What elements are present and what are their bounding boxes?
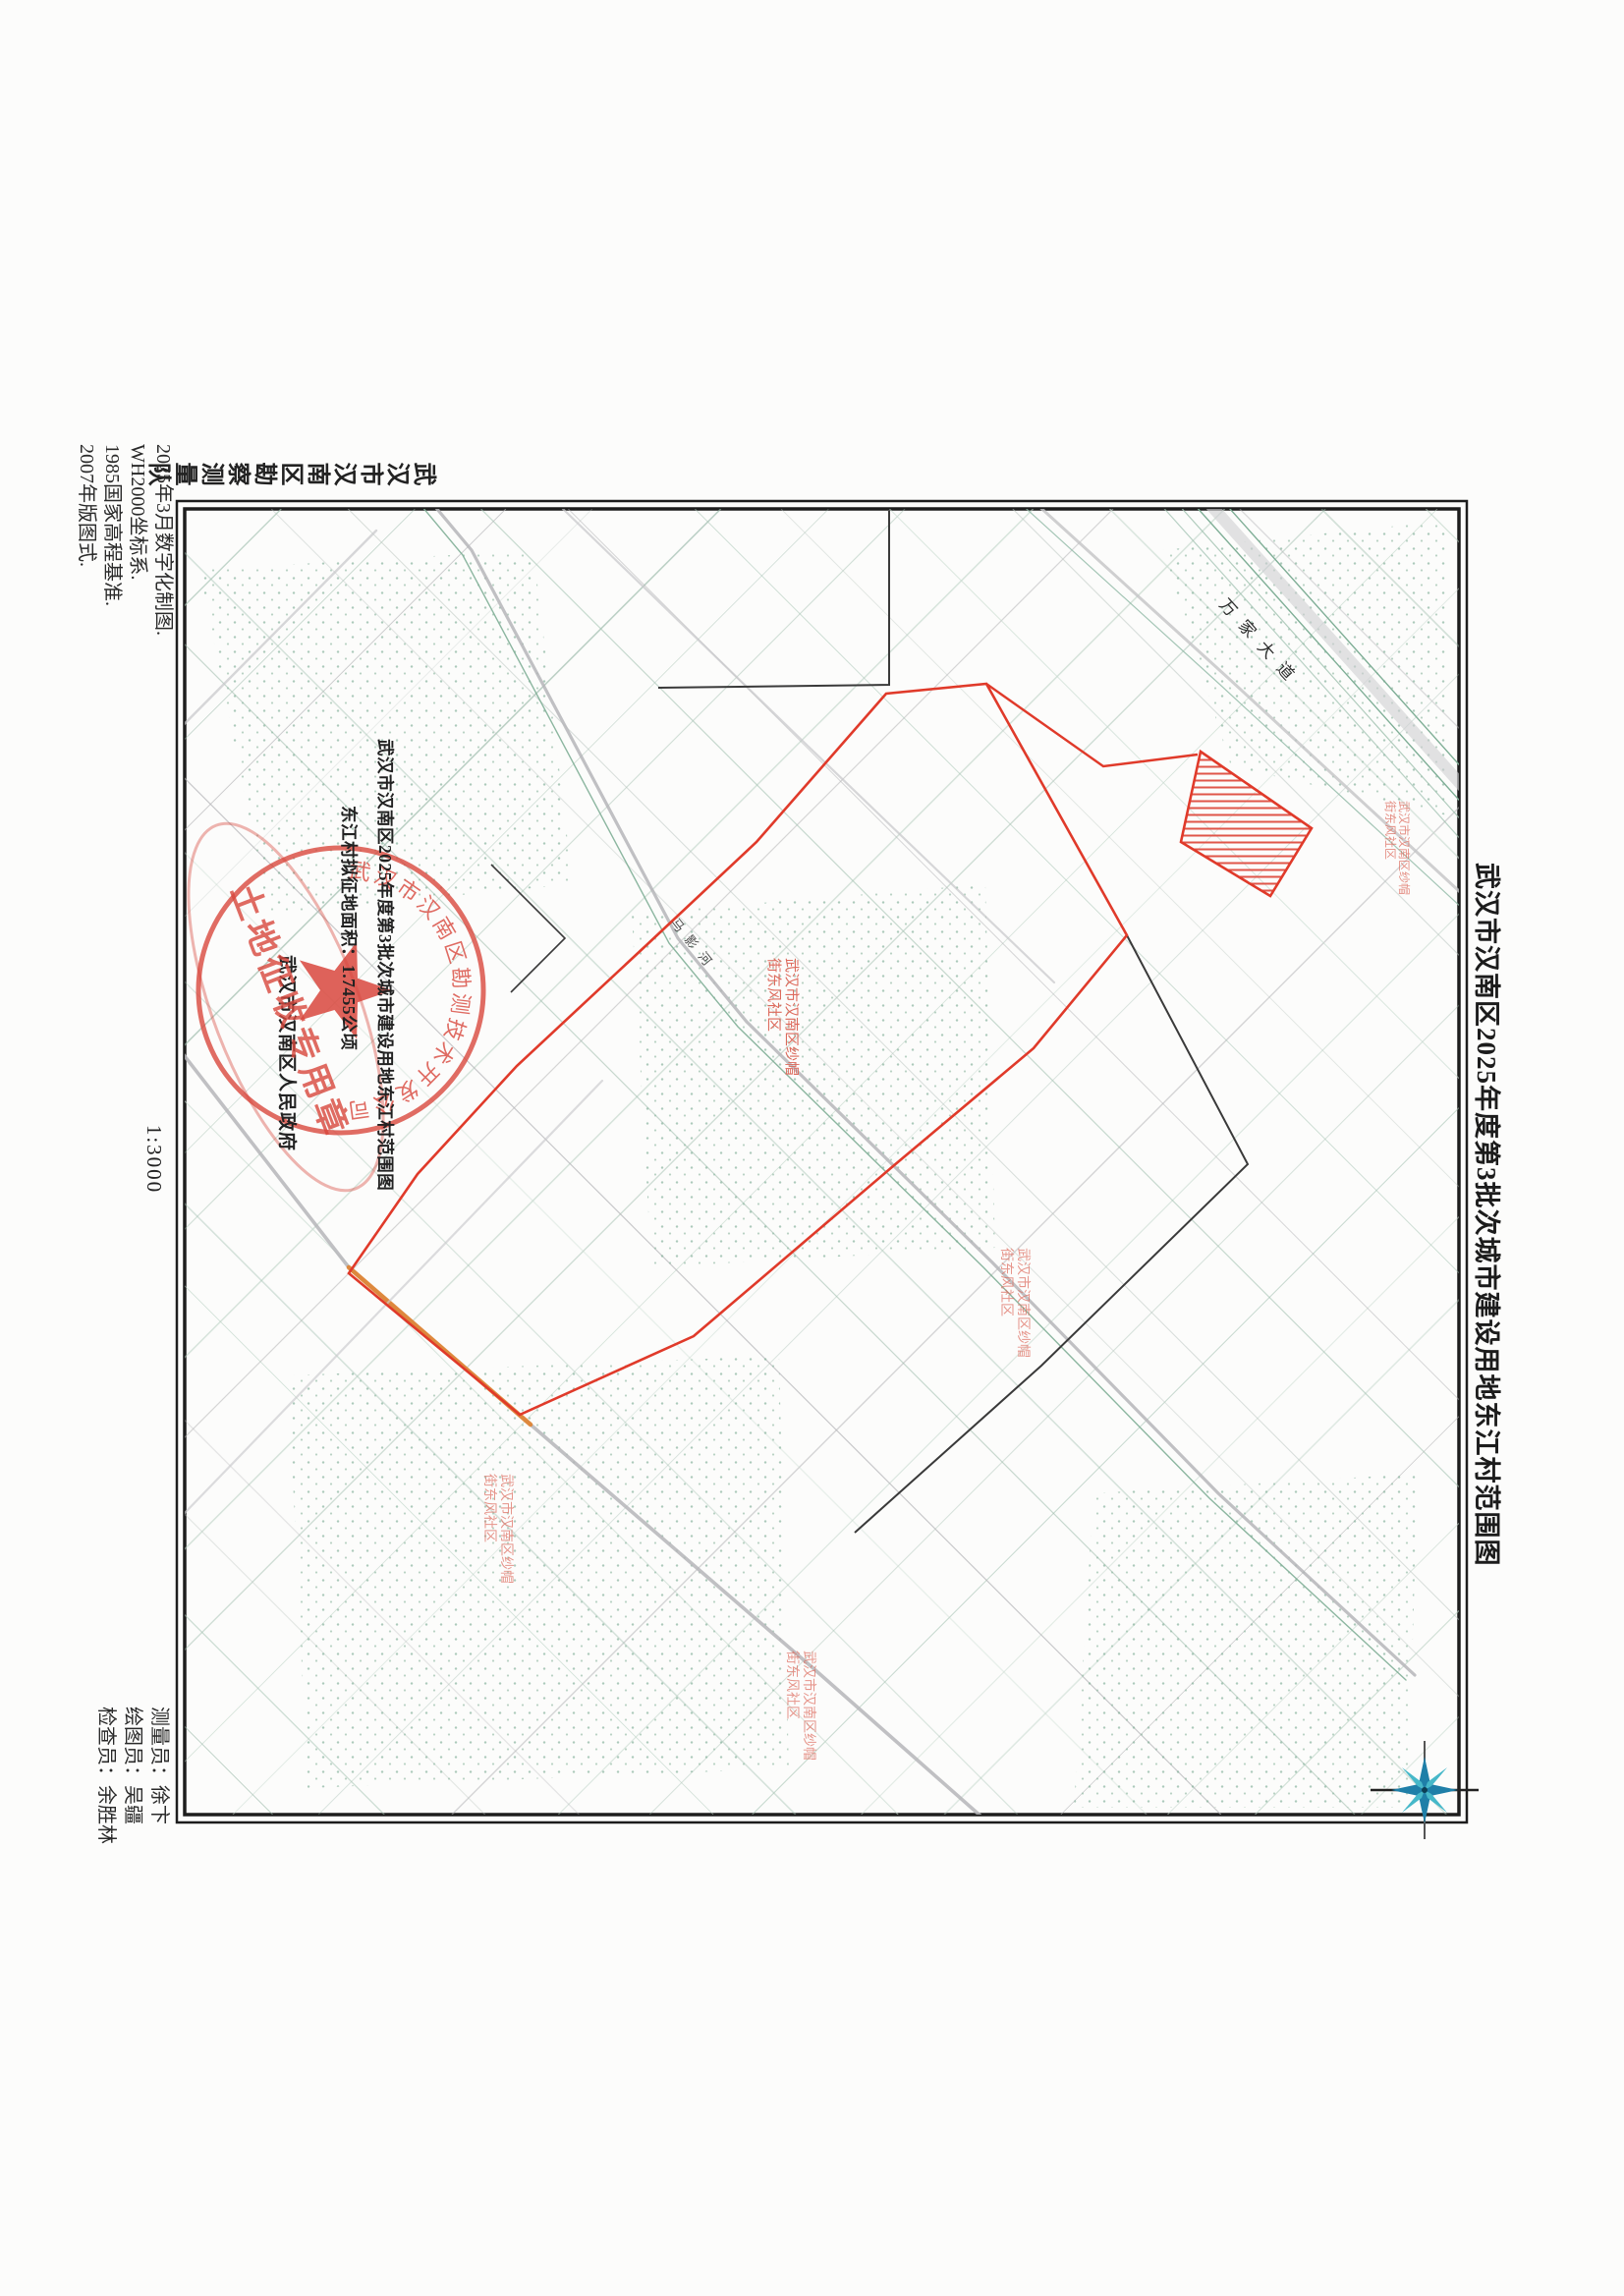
zone-label: 武汉市汉南区纱帽 街东风社区	[1383, 801, 1412, 895]
credit-surveyor: 测量员：徐卞	[145, 1707, 172, 1844]
note-line: 1985国家高程基准.	[99, 444, 125, 636]
zone-label-line1: 武汉市汉南区纱帽	[1397, 801, 1412, 895]
scanned-map-page: 万家大道 马影河 武汉市汉南区纱帽 街东风社区 武汉市汉南区纱帽 街东风社区 武…	[0, 0, 1624, 2296]
zone-label-line2: 街东风社区	[481, 1474, 497, 1542]
credit-inspector: 检查员：余胜林	[92, 1707, 119, 1844]
map-title: 武汉市汉南区2025年度第3批次城市建设用地东江村范围图	[1470, 863, 1508, 1491]
annotation-area-line: 东江村拟征地面积：1.7455公顷	[337, 806, 362, 1050]
rotated-landscape-sheet: 万家大道 马影河 武汉市汉南区纱帽 街东风社区 武汉市汉南区纱帽 街东风社区 武…	[0, 0, 1624, 2296]
zone-label-line1: 武汉市汉南区纱帽	[801, 1651, 817, 1761]
credit-draftsman: 绘图员：吴疆	[119, 1707, 145, 1844]
note-line: 2007年版图式.	[74, 444, 99, 636]
note-line: WH2000坐标系.	[125, 444, 150, 636]
zone-label: 武汉市汉南区纱帽 街东风社区	[784, 1651, 817, 1761]
scale-label: 1:3000	[141, 1100, 166, 1218]
mapping-notes: 2025年3月数字化制图. WH2000坐标系. 1985国家高程基准. 200…	[74, 444, 176, 636]
zone-label-line2: 街东风社区	[784, 1651, 800, 1719]
survey-agency-vertical-text: 武汉市汉南区勘察测量队	[172, 454, 437, 488]
zone-label-line1: 武汉市汉南区纱帽	[1015, 1248, 1032, 1358]
grid-line	[1426, 509, 1624, 1815]
annotation-title-line: 武汉市汉南区2025年度第3批次城市建设用地东江村范围图	[373, 739, 398, 1191]
zone-label-line2: 街东风社区	[998, 1248, 1014, 1316]
zone-label-line2: 街东风社区	[765, 958, 782, 1032]
credits-block: 测量员：徐卞 绘图员：吴疆 检查员：余胜林	[92, 1707, 172, 1844]
zone-label: 武汉市汉南区纱帽 街东风社区	[998, 1248, 1032, 1358]
zone-label-line1: 武汉市汉南区纱帽	[783, 958, 800, 1076]
map-canvas: 万家大道 马影河 武汉市汉南区纱帽 街东风社区 武汉市汉南区纱帽 街东风社区 武…	[0, 0, 1624, 2296]
zone-label-line2: 街东风社区	[1383, 801, 1398, 860]
zone-label-line1: 武汉市汉南区纱帽	[498, 1474, 515, 1584]
grid-line	[0, 509, 9, 1815]
note-line: 2025年3月数字化制图.	[150, 444, 176, 636]
grid-line	[0, 509, 110, 1815]
